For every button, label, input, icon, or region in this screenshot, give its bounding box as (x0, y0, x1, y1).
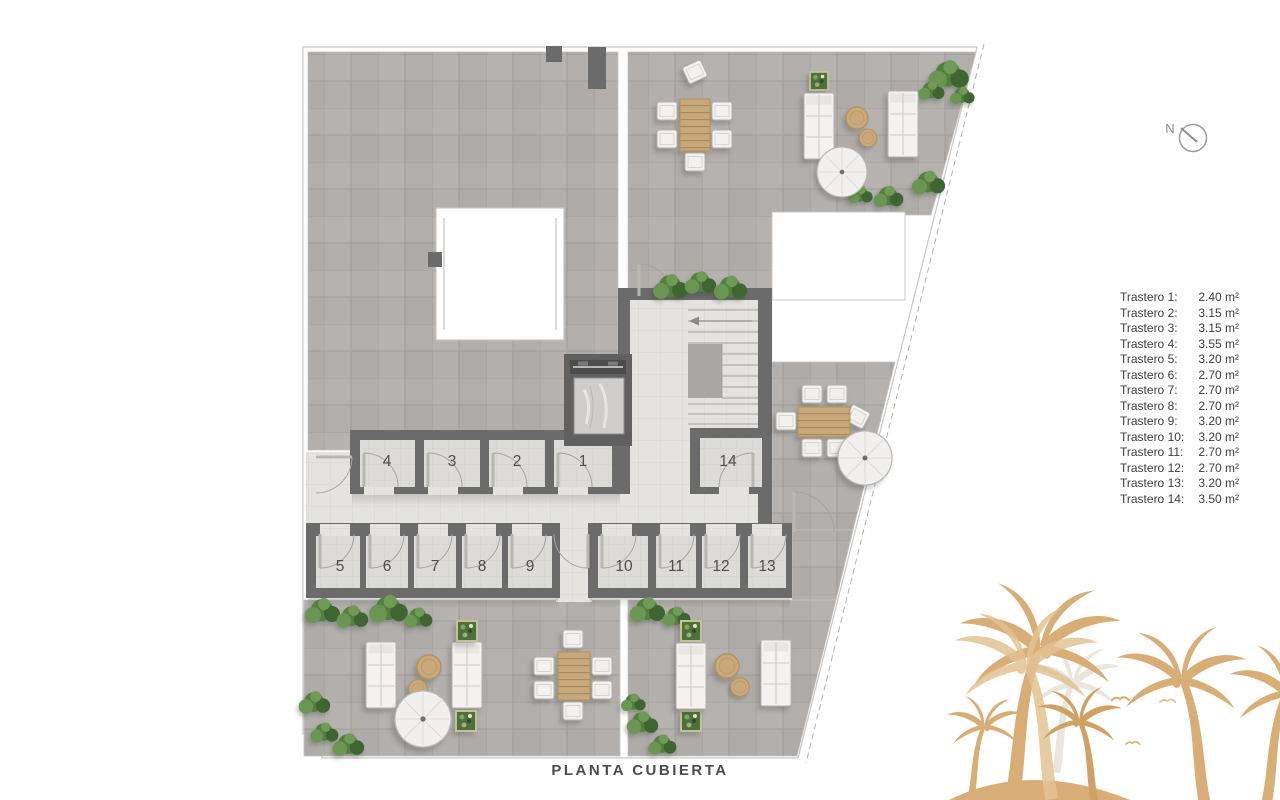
planter-icon (810, 72, 828, 90)
parasol-icon (817, 147, 867, 197)
legend-room-area: 2.40 m² (1198, 290, 1239, 306)
legend-room-name: Trastero 3: (1120, 321, 1178, 337)
legend-room-area: 3.15 m² (1198, 306, 1239, 322)
legend-row: Trastero 1:2.40 m² (1120, 290, 1239, 306)
room-label: 10 (615, 558, 633, 575)
roof-vent (546, 46, 562, 62)
room-label: 11 (668, 558, 684, 575)
sun-lounger-icon (888, 91, 918, 157)
storage-room-12: 12 (702, 524, 740, 588)
storage-room-2: 2 (489, 440, 545, 495)
storage-room-11: 11 (656, 524, 696, 588)
wall-shadow (308, 598, 558, 608)
bird-icon (1126, 742, 1140, 744)
legend-room-name: Trastero 13: (1120, 476, 1184, 492)
room-label: 6 (383, 558, 392, 575)
void-opening-top-right (772, 212, 905, 300)
legend-row: Trastero 14:3.50 m² (1120, 492, 1239, 508)
legend-room-name: Trastero 4: (1120, 337, 1178, 353)
legend-room-name: Trastero 14: (1120, 492, 1184, 508)
bird-icon (1112, 697, 1129, 700)
storage-room-4: 4 (360, 440, 415, 495)
dining-table-icon (558, 652, 590, 700)
terrace-connector-strip (792, 530, 853, 600)
stair-landing (688, 344, 722, 398)
legend-room-name: Trastero 7: (1120, 383, 1178, 399)
legend-row: Trastero 5:3.20 m² (1120, 352, 1239, 368)
parasol-icon (395, 691, 451, 747)
storage-room-3: 3 (424, 440, 480, 495)
planter-icon (457, 621, 477, 641)
parasol-icon (838, 431, 892, 485)
legend-room-area: 2.70 m² (1198, 445, 1239, 461)
legend-room-area: 2.70 m² (1198, 383, 1239, 399)
plan-title: PLANTA CUBIERTA (0, 762, 1280, 779)
side-table-icon (846, 107, 868, 129)
legend-room-name: Trastero 8: (1120, 399, 1178, 415)
legend-room-area: 2.70 m² (1198, 368, 1239, 384)
roof-chimney (588, 47, 606, 89)
legend-row: Trastero 12:2.70 m² (1120, 461, 1239, 477)
chair-icon (712, 130, 732, 148)
legend-room-area: 2.70 m² (1198, 461, 1239, 477)
side-table-icon (417, 655, 441, 679)
legend-row: Trastero 3:3.15 m² (1120, 321, 1239, 337)
legend-row: Trastero 10:3.20 m² (1120, 430, 1239, 446)
room-label: 12 (712, 558, 729, 575)
sun-lounger-icon (804, 93, 834, 159)
chair-icon (534, 681, 554, 699)
chair-icon (657, 102, 677, 120)
room-label: 9 (526, 558, 535, 575)
room-label: 2 (513, 453, 522, 470)
legend-room-name: Trastero 5: (1120, 352, 1178, 368)
planter-icon (681, 711, 701, 731)
legend-room-area: 2.70 m² (1198, 399, 1239, 415)
chair-icon (802, 385, 822, 403)
chair-icon (534, 657, 554, 675)
room-label: 5 (336, 558, 345, 575)
bird-icon (1160, 700, 1175, 703)
room-label: 4 (383, 453, 392, 470)
legend-room-area: 3.15 m² (1198, 321, 1239, 337)
chair-icon (776, 412, 796, 430)
north-compass-icon: N (1165, 121, 1206, 152)
room-label: 3 (448, 453, 457, 470)
storage-room-1: 1 (554, 440, 612, 495)
chair-icon (563, 702, 583, 720)
north-label: N (1165, 121, 1174, 136)
wall-shadow (352, 494, 620, 506)
chair-icon (592, 657, 612, 675)
legend-room-area: 3.20 m² (1198, 414, 1239, 430)
legend-row: Trastero 8:2.70 m² (1120, 399, 1239, 415)
planter-icon (681, 621, 701, 641)
legend-row: Trastero 11:2.70 m² (1120, 445, 1239, 461)
side-table-icon (715, 654, 739, 678)
dining-table-icon (798, 407, 850, 437)
legend-room-area: 3.55 m² (1198, 337, 1239, 353)
sun-lounger-icon (366, 642, 396, 708)
storage-room-8: 8 (462, 524, 502, 588)
wall-core-right (758, 300, 772, 530)
room-label: 1 (579, 453, 588, 470)
side-table-icon (731, 678, 750, 697)
legend-room-name: Trastero 9: (1120, 414, 1178, 430)
area-legend: Trastero 1:2.40 m² Trastero 2:3.15 m² Tr… (1120, 290, 1239, 507)
planter-icon (456, 711, 476, 731)
floor-plan-page: 4 3 2 1 14 5 6 (0, 0, 1280, 800)
legend-row: Trastero 7:2.70 m² (1120, 383, 1239, 399)
legend-room-area: 3.20 m² (1198, 476, 1239, 492)
legend-room-name: Trastero 11: (1120, 445, 1183, 461)
sun-lounger-icon (452, 642, 482, 708)
chair-icon (712, 102, 732, 120)
storage-room-13: 13 (748, 524, 786, 588)
storage-room-14: 14 (700, 438, 762, 495)
room-label: 7 (431, 558, 440, 575)
legend-row: Trastero 9:3.20 m² (1120, 414, 1239, 430)
chair-icon (657, 130, 677, 148)
room-label: 8 (478, 558, 487, 575)
elevator (564, 354, 632, 446)
legend-row: Trastero 13:3.20 m² (1120, 476, 1239, 492)
dining-table-icon (680, 99, 710, 151)
legend-room-area: 3.50 m² (1198, 492, 1239, 508)
wall-shadow (590, 598, 790, 608)
legend-room-name: Trastero 6: (1120, 368, 1178, 384)
legend-room-name: Trastero 2: (1120, 306, 1178, 322)
floor-plan-canvas: 4 3 2 1 14 5 6 (0, 0, 1280, 800)
legend-room-name: Trastero 1: (1120, 290, 1178, 306)
legend-room-name: Trastero 10: (1120, 430, 1184, 446)
chair-icon (563, 630, 583, 648)
legend-row: Trastero 2:3.15 m² (1120, 306, 1239, 322)
side-table-icon (859, 129, 877, 147)
legend-row: Trastero 6:2.70 m² (1120, 368, 1239, 384)
chair-icon (592, 681, 612, 699)
chair-icon (827, 385, 847, 403)
legend-row: Trastero 4:3.55 m² (1120, 337, 1239, 353)
chair-icon (802, 439, 822, 457)
room-label: 14 (719, 453, 737, 470)
legend-room-area: 3.20 m² (1198, 352, 1239, 368)
void-opening-top-left (428, 208, 564, 340)
legend-room-name: Trastero 12: (1120, 461, 1184, 477)
chair-icon (685, 153, 705, 171)
sun-lounger-icon (761, 640, 791, 706)
sun-lounger-icon (676, 643, 706, 709)
room-label: 13 (758, 558, 775, 575)
legend-room-area: 3.20 m² (1198, 430, 1239, 446)
